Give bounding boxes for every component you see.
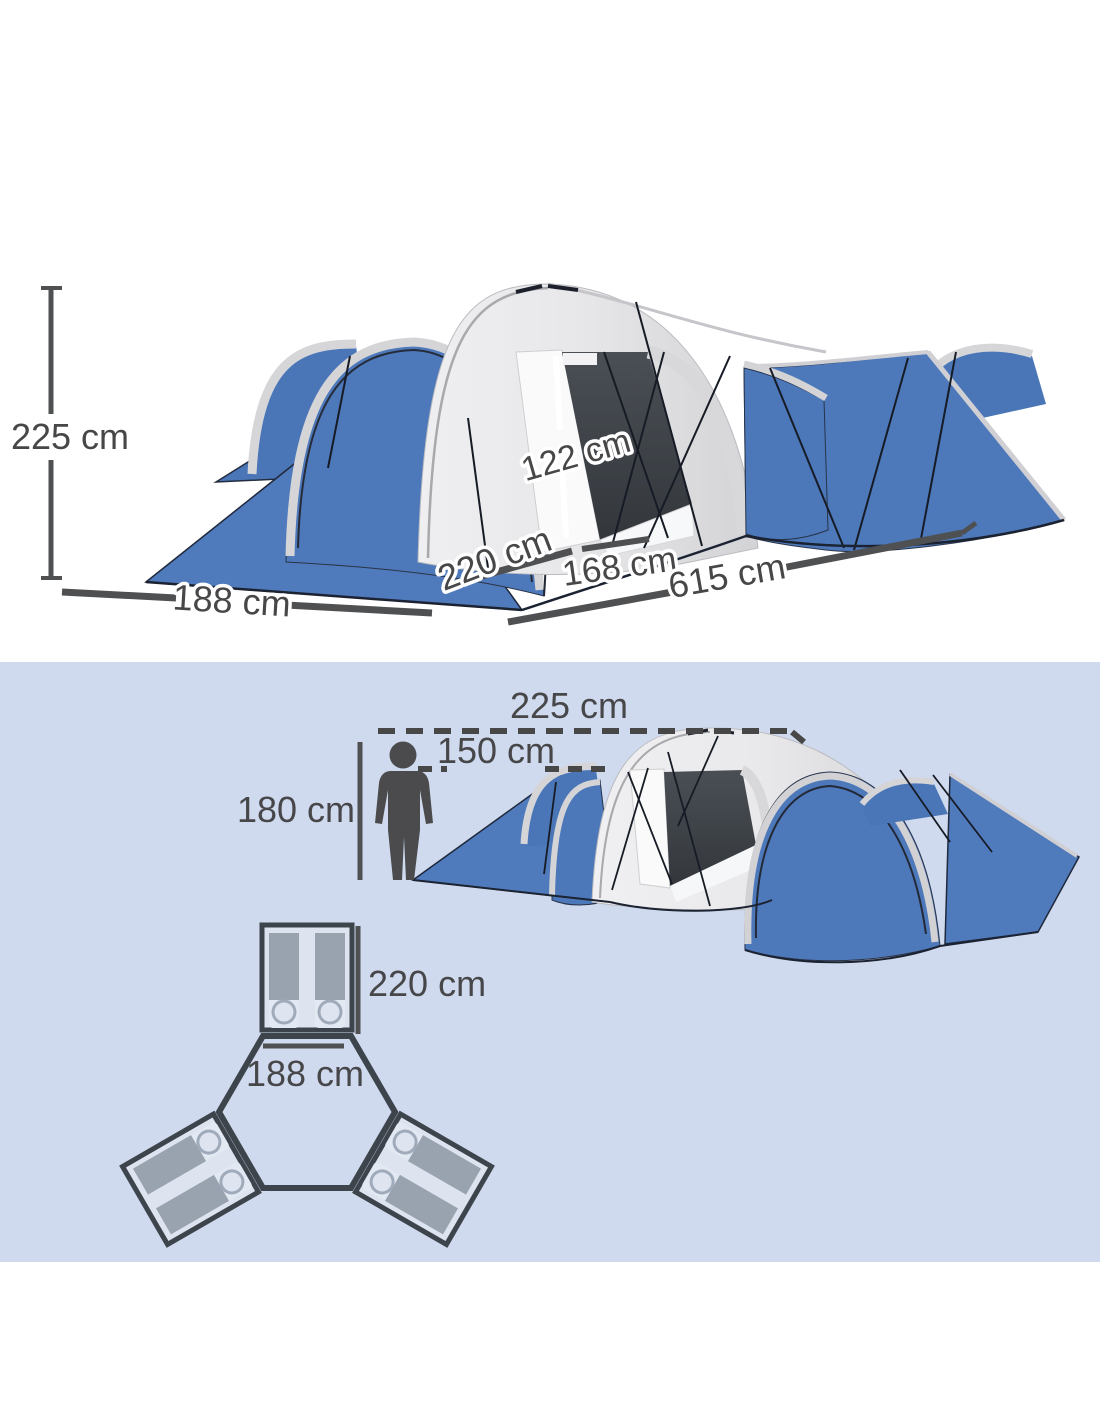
bedroom-width-label: 188 cm: [172, 576, 292, 624]
tent-height-label: 225 cm: [510, 685, 628, 726]
floorplan: 220 cm 188 cm: [123, 925, 492, 1244]
door-label-patch: [563, 353, 597, 365]
floorplan-compartment-left: [123, 1114, 259, 1244]
tent-dimension-diagram-page: 225 cm 188 cm 220 cm 168 cm 615 cm 122 c…: [0, 0, 1100, 1422]
person-height-label: 180 cm: [237, 789, 355, 830]
section-height-and-floorplan: 225 cm 150 cm 180 cm: [0, 662, 1100, 1262]
person-icon: [375, 742, 433, 881]
tent-exterior-illustration: 225 cm 188 cm 220 cm 168 cm 615 cm 122 c…: [0, 0, 1100, 662]
tent-height-label: 225 cm: [11, 416, 129, 457]
right-inner-end-panel: [744, 364, 828, 540]
floorplan-compartment-top: [262, 925, 352, 1030]
footer-whitespace: [0, 1262, 1100, 1422]
door-height-label: 150 cm: [437, 730, 555, 771]
right-wedge-panel: [945, 774, 1079, 944]
floorplan-depth-label: 220 cm: [368, 963, 486, 1004]
section-tent-exterior-dimensions: 225 cm 188 cm 220 cm 168 cm 615 cm 122 c…: [0, 0, 1100, 662]
floorplan-width-label: 188 cm: [246, 1053, 364, 1094]
height-comparison-and-floorplan: 225 cm 150 cm 180 cm: [0, 662, 1100, 1262]
floorplan-compartment-right: [356, 1114, 492, 1244]
